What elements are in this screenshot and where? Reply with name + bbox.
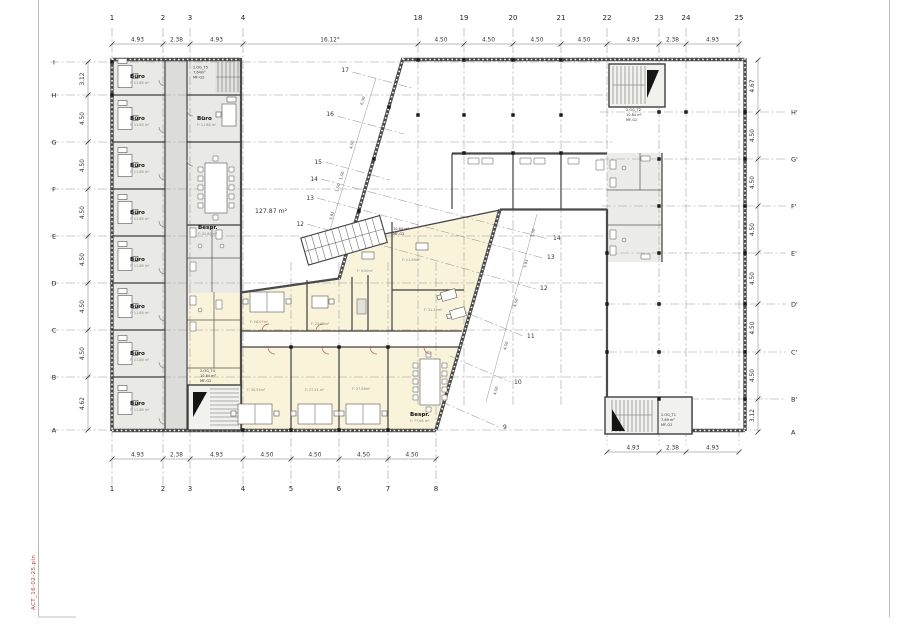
- dimension-label: 4.50: [435, 38, 448, 44]
- room-label-bespr: Bespr.: [410, 412, 429, 418]
- room-area: F: 11.88 m²: [130, 311, 150, 315]
- dimension-label: 4.50: [348, 139, 355, 149]
- axis-number: 21: [557, 14, 566, 22]
- drawing-filename: ACT_16-02-25.pln: [31, 555, 37, 610]
- dimension-label: 3.12: [80, 72, 86, 85]
- axis-number: 2: [161, 14, 165, 22]
- axis-letter: E': [791, 250, 797, 258]
- axis-number: 13: [547, 254, 555, 261]
- dimension-label: 4.50: [80, 253, 86, 266]
- room-label-buero: Büro: [130, 304, 145, 310]
- open-area-label: 127.87 m²: [255, 208, 288, 215]
- room-label-buero: Büro: [130, 74, 145, 80]
- room-area: F: 11.88 m²: [130, 217, 150, 221]
- axis-letter: C': [791, 349, 798, 357]
- room-area: F: 11.88 m²: [130, 170, 150, 174]
- dimension-label: 4.50: [406, 453, 419, 459]
- dimension-label: 4.50: [80, 112, 86, 125]
- dimension-label: 6.30: [359, 95, 366, 105]
- room-area: F: 42.80 m²: [198, 232, 218, 236]
- room-label-buero: Büro: [130, 401, 145, 407]
- room-area: F: 25.08m²: [311, 322, 330, 326]
- dimension-label: 3.92: [328, 210, 335, 220]
- dimension-label: 4.50: [512, 297, 519, 307]
- dimension-label: 4.93: [210, 453, 223, 459]
- axis-letter: F': [791, 203, 797, 211]
- axis-number: 22: [603, 14, 612, 22]
- stair-t1: [605, 397, 692, 434]
- stair-label: MF-G2: [393, 232, 404, 236]
- dimension-label: 3.93: [522, 258, 529, 268]
- room-area: F: 9.50m²: [357, 269, 374, 273]
- axis-letter: H: [52, 92, 57, 100]
- room-label-buero: Büro: [130, 257, 145, 263]
- angle-label: 16.12°: [320, 38, 340, 44]
- dimension-label: 4.93: [627, 38, 640, 44]
- room-label-bespr: Bespr.: [198, 225, 217, 231]
- room-area: F: 11.88 m²: [130, 264, 150, 268]
- axis-number: 25: [735, 14, 744, 22]
- stair-label: 2.OG_T2: [626, 108, 641, 112]
- dimension-label: 4.50: [309, 453, 322, 459]
- axis-letter: F: [52, 186, 56, 194]
- axis-number: 8: [434, 485, 438, 493]
- room-area: F: 31.29m²: [424, 308, 443, 312]
- floorplan-canvas: 1 2 3 4 18 19 20 21 22 23 24 25 1 2 3 4 …: [0, 0, 900, 636]
- axis-number: 11: [527, 333, 535, 340]
- room-area: F: 30.55m²: [247, 388, 266, 392]
- axis-letter: A: [791, 429, 796, 437]
- axis-letter: B: [52, 374, 56, 382]
- dimension-label: 4.62: [80, 397, 86, 410]
- room-area: F: 77.66 m²: [410, 419, 430, 423]
- axis-letter: H': [791, 109, 798, 117]
- room-area: F: 11.88 m²: [130, 123, 150, 127]
- axis-number: 14: [553, 235, 561, 242]
- room-area: F: 27.21 m²: [305, 388, 325, 392]
- room-label-buero: Büro: [130, 116, 145, 122]
- axis-number: 1: [110, 14, 114, 22]
- stair-t2: [609, 64, 665, 107]
- axis-number: 3: [188, 485, 192, 493]
- room-label-buero: Büro: [130, 210, 145, 216]
- axis-number: 3: [188, 14, 192, 22]
- stair-label: 2.OG_T1: [661, 413, 676, 417]
- dimension-label: 4.50: [80, 347, 86, 360]
- axis-number: 4: [241, 14, 246, 22]
- dimension-label: 1.50: [338, 170, 345, 180]
- dimension-label: 4.50: [750, 272, 756, 285]
- dimension-label: 4.93: [131, 38, 144, 44]
- stair-label: 2.OG_T5: [193, 66, 208, 70]
- dimension-label: 4.50: [502, 340, 509, 350]
- axis-number: 18: [414, 14, 423, 22]
- axis-letter: C: [52, 327, 57, 335]
- room-area: F: 27.56m²: [352, 387, 371, 391]
- axis-number: 10: [514, 379, 522, 386]
- stair-label: 10.84 m²: [200, 374, 217, 378]
- dimension-label: 4.50: [750, 369, 756, 382]
- axis-letter: B': [791, 396, 797, 404]
- stair-label: 7.69 m²: [661, 418, 675, 422]
- axis-number: 24: [682, 14, 691, 22]
- dimension-label: 4.50: [80, 159, 86, 172]
- axis-number: 12: [296, 221, 304, 228]
- dimension-label: 2.38: [170, 453, 183, 459]
- stair-label: 2.OG_T4: [200, 369, 216, 373]
- room-area: F: 11.88 m²: [197, 123, 217, 127]
- dimension-label: 4.50: [492, 385, 499, 395]
- axis-letter: G': [791, 156, 798, 164]
- axis-number: 20: [509, 14, 518, 22]
- dimension-label: 4.50: [750, 321, 756, 334]
- axis-letter: D: [51, 280, 56, 288]
- room-label-buero: Büro: [130, 163, 145, 169]
- axis-number: 4: [241, 485, 246, 493]
- room-area: F: 11.98m²: [402, 258, 421, 262]
- dimension-label: 4.50: [750, 129, 756, 142]
- dimension-label: 4.93: [706, 38, 719, 44]
- axis-letter: I: [53, 59, 55, 67]
- room-area: F: 11.88 m²: [130, 408, 150, 412]
- dimension-label: 4.93: [210, 38, 223, 44]
- axis-number: 15: [314, 159, 322, 166]
- dimension-label: 2.38: [666, 38, 679, 44]
- stair-t4: [188, 385, 241, 430]
- room-area: F: 28.07m²: [250, 320, 269, 324]
- dimension-label: 4.50: [80, 206, 86, 219]
- axis-letter: D': [791, 301, 798, 309]
- axis-number: 17: [341, 67, 349, 74]
- room-area: F: 11.88 m²: [130, 81, 150, 85]
- stair-label: MF-G2: [626, 118, 637, 122]
- axis-number: 16: [326, 111, 334, 118]
- axis-number: 7: [386, 485, 390, 493]
- stair-label: 10.84 m²: [626, 113, 643, 117]
- axis-letter: E: [52, 233, 56, 241]
- axis-number: 12: [540, 285, 548, 292]
- dimension-label: 4.50: [482, 38, 495, 44]
- drawing-sheet: 1 2 3 4 18 19 20 21 22 23 24 25 1 2 3 4 …: [0, 0, 900, 636]
- dimension-label: 4.50: [531, 38, 544, 44]
- axis-number: 2: [161, 485, 165, 493]
- axis-number: 14: [310, 176, 318, 183]
- dimension-label: 4.50: [357, 453, 370, 459]
- dimension-label: 4.50: [750, 223, 756, 236]
- axis-number: 6: [337, 485, 342, 493]
- dimension-label: 4.50: [261, 453, 274, 459]
- dimension-label: 4.93: [706, 446, 719, 452]
- dimension-label: 4.93: [627, 446, 640, 452]
- dimension-label: 2.38: [666, 446, 679, 452]
- stair-label: MF-G2: [661, 423, 672, 427]
- dimension-label: 2.38: [170, 38, 183, 44]
- copier: [357, 299, 366, 314]
- stair-label: 10.84 m²: [393, 227, 410, 231]
- stair-label: MF-G2: [193, 76, 204, 80]
- dimension-label: 4.50: [750, 176, 756, 189]
- stair-label: 7.64m²: [193, 71, 206, 75]
- axis-number: 13: [306, 195, 314, 202]
- axis-number: 23: [655, 14, 664, 22]
- axis-number: 19: [460, 14, 469, 22]
- axis-letter: G: [51, 139, 56, 147]
- dimension-label: 4.50: [578, 38, 591, 44]
- axis-number: 1: [110, 485, 114, 493]
- dimension-label: 4.93: [131, 453, 144, 459]
- axis-number: 9: [503, 424, 507, 431]
- dimension-label: 4.67: [750, 79, 756, 92]
- stair-label: MF-G2: [200, 379, 211, 383]
- axis-number: 5: [289, 485, 293, 493]
- dimension-label: 4.50: [80, 300, 86, 313]
- dimension-label: 3.12: [750, 409, 756, 422]
- room-label-buero: Büro: [197, 116, 212, 122]
- room-label-buero: Büro: [130, 351, 145, 357]
- room-area: F: 11.88 m²: [130, 358, 150, 362]
- axis-letter: A: [52, 427, 57, 435]
